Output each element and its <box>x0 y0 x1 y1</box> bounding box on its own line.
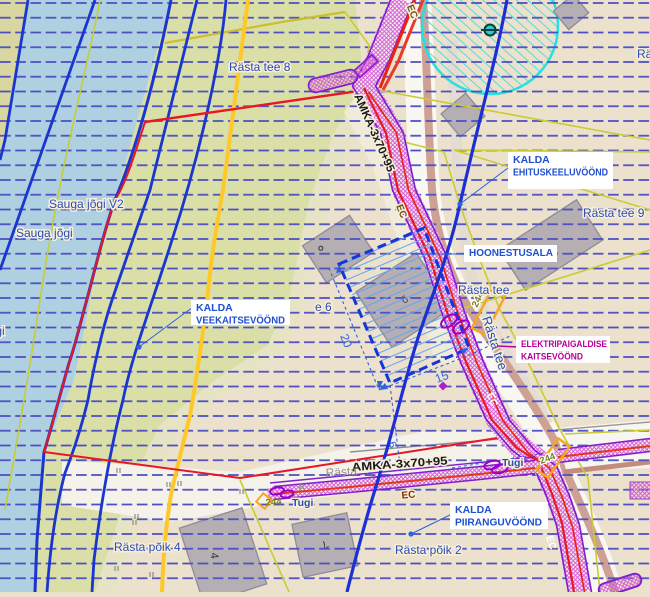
svg-text:Rästa tee 8: Rästa tee 8 <box>229 60 291 74</box>
svg-text:KALDA: KALDA <box>513 154 550 166</box>
svg-text:VEEKAITSEVÖÖND: VEEKAITSEVÖÖND <box>196 314 285 327</box>
svg-text:jõgi: jõgi <box>0 324 5 338</box>
svg-text:Räst: Räst <box>637 47 650 61</box>
svg-text:Rästa põik 4: Rästa põik 4 <box>114 540 181 554</box>
svg-text:Tugi: Tugi <box>502 457 523 469</box>
svg-text:Rästa: Rästa <box>325 464 358 480</box>
svg-text:EC: EC <box>401 489 416 501</box>
svg-text:244: 244 <box>265 496 282 508</box>
svg-text:e 6: e 6 <box>315 300 332 314</box>
svg-text:HOONESTUSALA: HOONESTUSALA <box>469 247 553 259</box>
svg-text:Rästa põik 2: Rästa põik 2 <box>395 543 462 557</box>
svg-text:Sauga jõgi V2: Sauga jõgi V2 <box>49 197 124 211</box>
svg-text:Rästa tee 9: Rästa tee 9 <box>583 206 645 220</box>
svg-text:KAITSEVÖÖND: KAITSEVÖÖND <box>521 352 583 363</box>
svg-text:PIIRANGUVÖÖND: PIIRANGUVÖÖND <box>455 516 542 529</box>
svg-text:Rästa tee: Rästa tee <box>458 283 510 297</box>
svg-text:ELEKTRIPAIGALDISE: ELEKTRIPAIGALDISE <box>521 339 607 350</box>
svg-text:KALDA: KALDA <box>455 504 492 516</box>
svg-text:EHITUSKEELUVÖÖND: EHITUSKEELUVÖÖND <box>513 166 608 179</box>
svg-text:Sauga jõgi: Sauga jõgi <box>16 226 73 240</box>
svg-text:KALDA: KALDA <box>196 302 233 314</box>
svg-text:Tugi: Tugi <box>292 497 313 509</box>
